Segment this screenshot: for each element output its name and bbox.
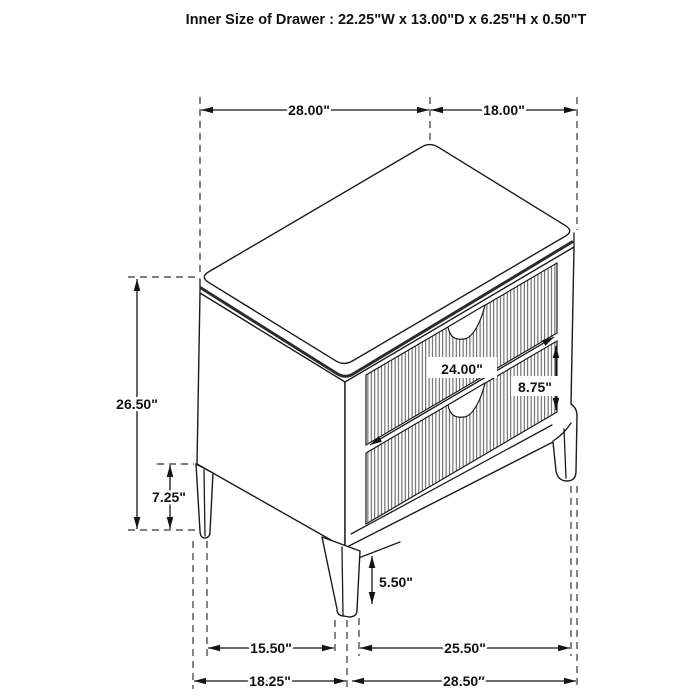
- dimension-diagram-page: Inner Size of Drawer : 22.25"W x 13.00"D…: [0, 0, 700, 700]
- dim-overall-height-label: 26.50": [116, 396, 158, 412]
- nightstand-dimension-diagram: Inner Size of Drawer : 22.25"W x 13.00"D…: [0, 0, 700, 700]
- dim-top-depth-label: 18.00": [483, 102, 525, 118]
- dim-base-depth: 18.25": [194, 673, 346, 689]
- dim-top-width-label: 28.00": [288, 102, 330, 118]
- dim-leg-span-front: 25.50": [360, 640, 570, 656]
- dim-leg-span-side-label: 15.50": [250, 640, 292, 656]
- dim-drawer-width-label: 24.00": [441, 361, 483, 377]
- ext-frontleg-top-reference: [356, 542, 400, 559]
- dim-front-leg-height: 5.50": [372, 556, 413, 604]
- dim-drawer-height-label: 8.75": [518, 379, 552, 395]
- dim-base-width-label: 28.50″: [443, 673, 485, 689]
- dim-leg-span-front-label: 25.50": [444, 640, 486, 656]
- page-title: Inner Size of Drawer : 22.25"W x 13.00"D…: [186, 12, 587, 28]
- dim-base-width: 28.50″: [352, 673, 576, 689]
- dim-front-leg-height-label: 5.50": [379, 574, 413, 590]
- dim-top-depth: 18.00": [431, 102, 576, 118]
- front-left-leg: [322, 537, 360, 617]
- dim-back-leg-height: 7.25": [152, 465, 186, 529]
- dim-top-width: 28.00": [201, 102, 429, 118]
- dim-back-leg-height-label: 7.25": [152, 489, 186, 505]
- dim-leg-span-side: 15.50": [208, 640, 334, 656]
- dim-base-depth-label: 18.25": [249, 673, 291, 689]
